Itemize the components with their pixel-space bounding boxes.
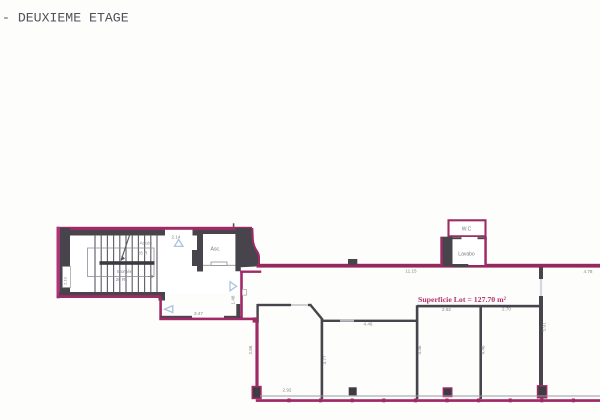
svg-text:5.91: 5.91 xyxy=(542,322,547,331)
svg-text:4.46: 4.46 xyxy=(481,345,486,354)
svg-text:11.15: 11.15 xyxy=(405,269,417,274)
svg-text:4.78: 4.78 xyxy=(584,269,593,274)
svg-text:Lavabo: Lavabo xyxy=(458,252,475,258)
svg-text:2.70: 2.70 xyxy=(502,306,511,311)
svg-text:26 R: 26 R xyxy=(138,250,148,255)
svg-text:1.48: 1.48 xyxy=(231,295,236,304)
svg-text:2.92: 2.92 xyxy=(283,388,292,393)
svg-text:Accès: Accès xyxy=(139,240,152,245)
svg-text:Montée: Montée xyxy=(117,269,133,274)
svg-text:2.56: 2.56 xyxy=(248,345,253,354)
svg-text:- DEUXIEME ETAGE: - DEUXIEME ETAGE xyxy=(2,11,129,26)
svg-text:2.10: 2.10 xyxy=(63,276,68,285)
svg-text:2.92: 2.92 xyxy=(442,307,451,312)
svg-text:3.47: 3.47 xyxy=(194,311,203,316)
svg-text:Asc.: Asc. xyxy=(211,247,221,253)
svg-text:2.14: 2.14 xyxy=(172,235,181,240)
svg-text:26 R: 26 R xyxy=(116,277,126,282)
svg-text:Superficie Lot = 127.70 m²: Superficie Lot = 127.70 m² xyxy=(418,295,507,304)
svg-text:4.46: 4.46 xyxy=(417,345,422,354)
svg-text:4.46: 4.46 xyxy=(364,321,373,326)
svg-text:W.C: W.C xyxy=(462,227,472,233)
svg-text:3.77: 3.77 xyxy=(322,355,327,364)
